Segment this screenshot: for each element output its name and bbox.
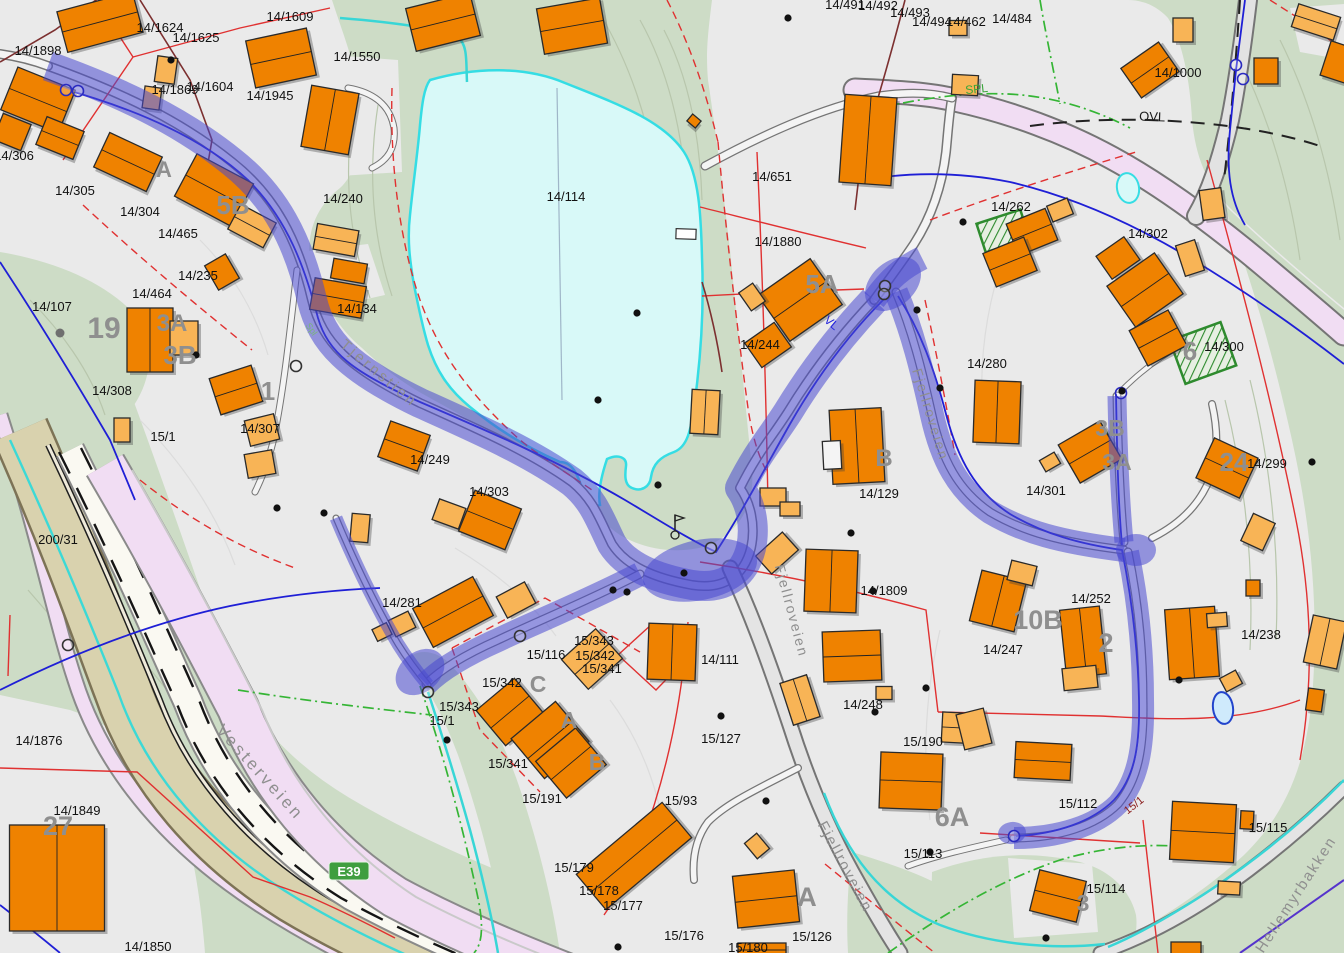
parcel-label: 14/1945 bbox=[247, 88, 294, 103]
parcel-label: 14/651 bbox=[752, 169, 792, 184]
small-structure bbox=[676, 229, 696, 240]
parcel-label: 15/341 bbox=[488, 756, 528, 771]
boundary-point-marker bbox=[959, 218, 966, 225]
survey-circle-marker bbox=[291, 361, 302, 372]
building bbox=[114, 418, 130, 442]
building bbox=[350, 513, 370, 542]
boundary-point-marker bbox=[922, 684, 929, 691]
house-number-label: 2 bbox=[1098, 628, 1113, 658]
parcel-label: 15/177 bbox=[603, 898, 643, 913]
map-canvas[interactable]: 14/189814/162414/162514/160914/155014/18… bbox=[0, 0, 1344, 953]
parcel-label: 14/134 bbox=[337, 301, 377, 316]
boundary-point-marker bbox=[717, 712, 724, 719]
parcel-label: 15/343 bbox=[439, 699, 479, 714]
parcel-label: 14/304 bbox=[120, 204, 160, 219]
parcel-label: 14/262 bbox=[991, 199, 1031, 214]
building bbox=[1254, 58, 1278, 84]
boundary-point-marker bbox=[273, 504, 280, 511]
house-number-label: B bbox=[589, 749, 606, 775]
boundary-point-marker bbox=[443, 736, 450, 743]
parcel-label: 14/235 bbox=[178, 268, 218, 283]
utility-label: SPL bbox=[965, 81, 989, 97]
parcel-label: 14/308 bbox=[92, 383, 132, 398]
boundary-point-marker bbox=[1175, 676, 1182, 683]
parcel-label: 15/127 bbox=[701, 731, 741, 746]
parcel-label: 15/93 bbox=[665, 793, 698, 808]
utility-label: OVL bbox=[1139, 109, 1166, 125]
parcel-label: 14/1609 bbox=[267, 9, 314, 24]
parcel-label: 15/126 bbox=[792, 929, 832, 944]
survey-circle-marker bbox=[423, 687, 434, 698]
house-number-label: 3B bbox=[1095, 415, 1124, 441]
parcel-label: 14/114 bbox=[547, 189, 586, 204]
boundary-point-marker bbox=[594, 396, 601, 403]
parcel-label: 15/343 bbox=[574, 633, 614, 648]
parcel-label: 15/114 bbox=[1087, 881, 1126, 896]
parcel-label: 14/306 bbox=[0, 148, 34, 163]
parcel-label: 15/342 bbox=[482, 675, 522, 690]
house-number-label: 24 bbox=[1220, 447, 1249, 477]
parcel-label: 15/190 bbox=[903, 734, 943, 749]
parcel-label: 14/1000 bbox=[1155, 65, 1202, 80]
boundary-point-marker bbox=[784, 14, 791, 21]
parcel-label: 14/299 bbox=[1247, 456, 1287, 471]
boundary-point-marker bbox=[913, 306, 920, 313]
house-number-label: 1 bbox=[261, 376, 275, 406]
parcel-label: 14/1604 bbox=[187, 79, 234, 94]
route-highlight-junction[interactable] bbox=[1116, 534, 1156, 566]
parcel-label: 14/464 bbox=[132, 286, 172, 301]
parcel-label: 15/179 bbox=[554, 860, 594, 875]
parcel-label: 14/484 bbox=[992, 11, 1032, 26]
building bbox=[1246, 580, 1260, 596]
parcel-label: 15/1 bbox=[429, 713, 454, 728]
parcel-label: 14/305 bbox=[55, 183, 95, 198]
boundary-point-marker bbox=[847, 529, 854, 536]
parcel-label: 14/465 bbox=[158, 226, 198, 241]
survey-circle-marker bbox=[63, 640, 74, 651]
parcel-label: 15/113 bbox=[904, 846, 943, 861]
survey-circle-marker bbox=[515, 631, 526, 642]
parcel-label: 15/178 bbox=[579, 883, 619, 898]
parcel-label: 14/238 bbox=[1241, 627, 1281, 642]
parcel-label: 15/112 bbox=[1059, 796, 1098, 811]
house-number-label: 3A bbox=[157, 310, 188, 337]
parcel-label: 14/244 bbox=[740, 337, 780, 352]
boundary-point-marker bbox=[1118, 387, 1125, 394]
parcel-label: 14/300 bbox=[1204, 339, 1244, 354]
building bbox=[1207, 612, 1228, 627]
boundary-point-marker bbox=[320, 509, 327, 516]
parcel-label: 14/1550 bbox=[334, 49, 381, 64]
house-number-label: 10B bbox=[1013, 605, 1063, 635]
parcel-label: 14/280 bbox=[967, 356, 1007, 371]
parcel-label: 14/1876 bbox=[16, 733, 63, 748]
house-number-label: C bbox=[530, 671, 547, 697]
parcel-label: 14/107 bbox=[32, 299, 72, 314]
parcel-label: 15/180 bbox=[728, 940, 768, 953]
building bbox=[822, 441, 841, 470]
survey-circle-marker bbox=[61, 85, 72, 96]
house-number-label: A bbox=[156, 157, 172, 182]
parcel-label: 14/1898 bbox=[15, 43, 62, 58]
house-number-label: A bbox=[561, 707, 578, 733]
house-number-label: 19 bbox=[87, 312, 120, 345]
map-viewport[interactable]: 14/189814/162414/162514/160914/155014/18… bbox=[0, 0, 1344, 953]
building bbox=[1218, 881, 1241, 895]
parcel-label: 15/115 bbox=[1249, 820, 1288, 835]
route-number-text: E39 bbox=[337, 864, 360, 879]
building bbox=[1199, 188, 1225, 221]
boundary-point-marker bbox=[609, 586, 616, 593]
parcel-label: 14/129 bbox=[859, 486, 899, 501]
parcel-label: 14/1880 bbox=[755, 234, 802, 249]
parcel-label: 14/252 bbox=[1071, 591, 1111, 606]
parcel-label: 15/116 bbox=[527, 647, 566, 662]
building bbox=[1171, 942, 1201, 953]
boundary-point-marker bbox=[167, 56, 174, 63]
survey-circle-marker bbox=[1238, 74, 1249, 85]
parcel-label: 14/249 bbox=[410, 452, 450, 467]
boundary-point-marker bbox=[654, 481, 661, 488]
house-number-label: 27 bbox=[43, 811, 73, 841]
parcel-label: 14/303 bbox=[469, 484, 509, 499]
building bbox=[1306, 688, 1325, 712]
building bbox=[780, 502, 800, 516]
parcel-label: 14/247 bbox=[983, 642, 1023, 657]
house-number-label: 3A bbox=[1102, 449, 1131, 475]
boundary-point-marker bbox=[614, 943, 621, 950]
survey-circle-marker bbox=[879, 289, 890, 300]
house-number-label: 6A bbox=[935, 802, 970, 832]
parcel-label: 14/248 bbox=[843, 697, 883, 712]
parcel-label: 14/1625 bbox=[173, 30, 220, 45]
parcel-label: 15/191 bbox=[522, 791, 562, 806]
parcel-label: 14/111 bbox=[701, 652, 739, 667]
house-number-label: 5A bbox=[805, 269, 838, 299]
house-number-label: 3B bbox=[163, 340, 196, 370]
survey-circle-marker bbox=[706, 543, 717, 554]
boundary-point-marker bbox=[1308, 458, 1315, 465]
boundary-point-marker bbox=[1042, 934, 1049, 941]
parcel-label: 15/341 bbox=[582, 661, 622, 676]
parcel-label: 14/307 bbox=[240, 421, 280, 436]
parcel-label: 15/1 bbox=[150, 429, 175, 444]
boundary-point-marker bbox=[623, 588, 630, 595]
boundary-point-marker bbox=[633, 309, 640, 316]
parcel-label: 14/1850 bbox=[125, 939, 172, 953]
boundary-point-marker bbox=[680, 569, 687, 576]
parcel-label: 14/301 bbox=[1026, 483, 1066, 498]
survey-circle-marker bbox=[1231, 60, 1242, 71]
house-number-dot bbox=[56, 329, 65, 338]
house-number-label: 5B bbox=[216, 190, 249, 220]
parcel-label: 14/240 bbox=[323, 191, 363, 206]
building bbox=[1062, 665, 1098, 690]
house-number-label: A bbox=[797, 882, 817, 912]
building bbox=[1173, 18, 1193, 42]
parcel-label: 200/31 bbox=[38, 532, 78, 547]
boundary-point-marker bbox=[936, 384, 943, 391]
parcel-label: 14/281 bbox=[382, 595, 422, 610]
building bbox=[244, 450, 276, 478]
house-number-label: 3 bbox=[1077, 890, 1090, 916]
parcel-label: 14/1809 bbox=[861, 583, 908, 598]
parcel-label: 14/462 bbox=[946, 14, 986, 29]
parcel-label: 15/176 bbox=[664, 928, 704, 943]
parcel-label: 14/302 bbox=[1128, 226, 1168, 241]
survey-circle-marker bbox=[73, 86, 84, 97]
house-number-label: 6 bbox=[1183, 336, 1197, 366]
boundary-point-marker bbox=[762, 797, 769, 804]
house-number-label: B bbox=[875, 445, 892, 472]
survey-circle-marker bbox=[1009, 831, 1020, 842]
